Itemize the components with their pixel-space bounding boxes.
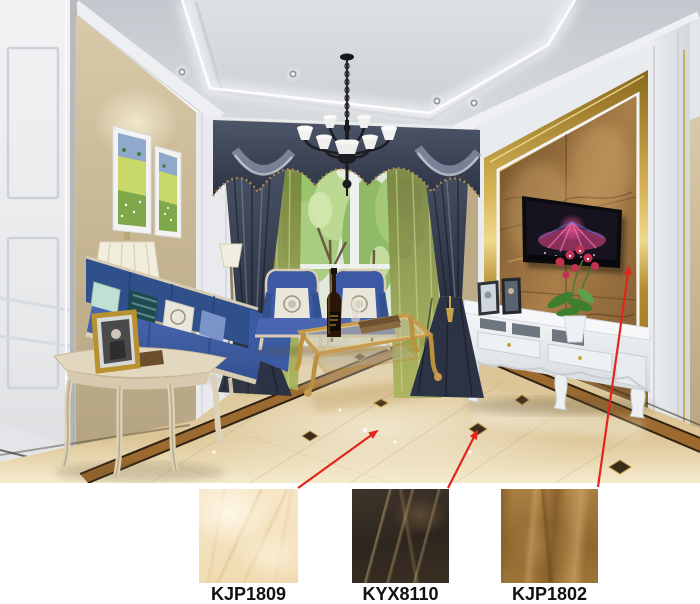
painting-left xyxy=(113,126,151,234)
tile-code-label: KJP1809 xyxy=(199,585,298,604)
painting-right xyxy=(155,146,181,238)
tile-swatch-kjp1809 xyxy=(199,489,298,583)
tile-code-label: KYX8110 xyxy=(352,585,449,604)
vase xyxy=(564,316,586,342)
tile-swatch-kyx8110 xyxy=(352,489,449,583)
drinking-glass xyxy=(350,300,361,321)
photo-frame-small xyxy=(479,282,498,314)
tile-showcase-image: KJP1809 KYX8110 KJP1802 xyxy=(0,0,700,604)
room-rendering xyxy=(0,0,700,483)
room-scene-svg xyxy=(0,0,700,483)
photo-frame-small-2 xyxy=(503,279,520,313)
tile-code-label: KJP1802 xyxy=(501,585,598,604)
tile-swatch-kjp1802 xyxy=(501,489,598,583)
